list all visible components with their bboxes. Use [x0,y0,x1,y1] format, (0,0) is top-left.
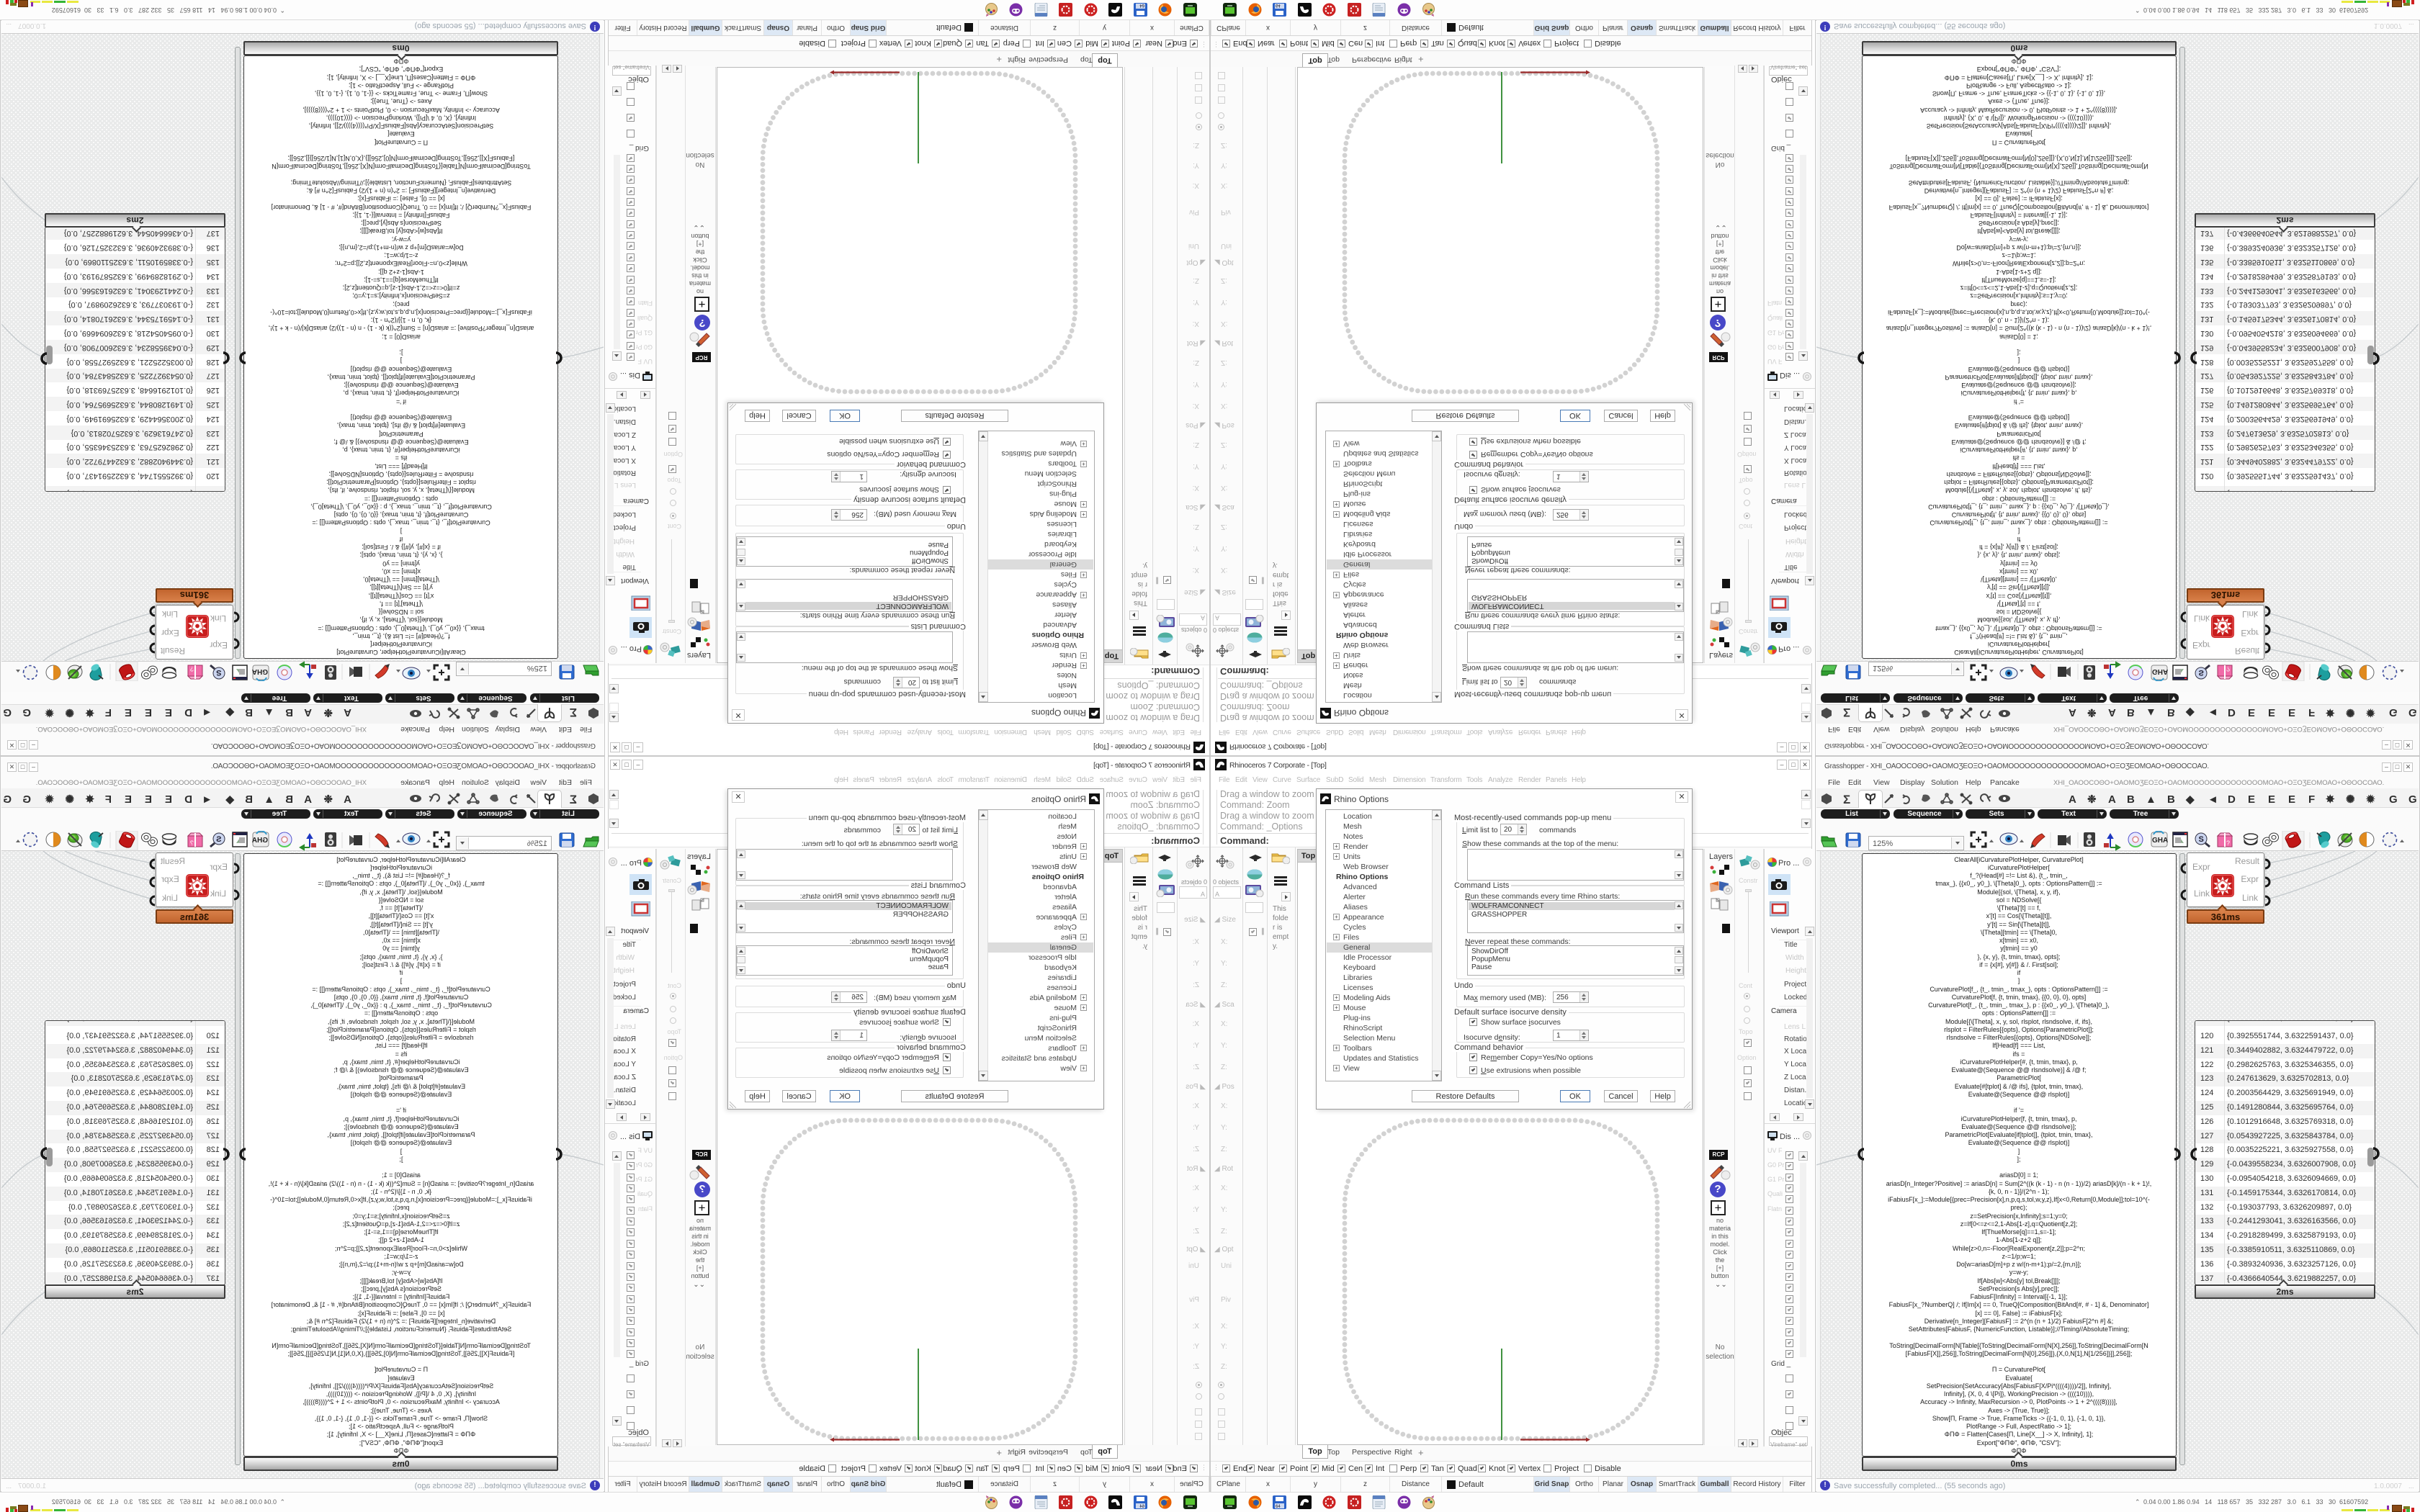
svg-text:A: A [2069,793,2076,806]
svg-text:◄: ◄ [202,706,212,719]
svg-text:◆: ◆ [225,793,235,806]
svg-text:E: E [145,706,152,719]
svg-text:▲: ▲ [264,706,274,719]
svg-text:✺: ✺ [2346,793,2355,806]
svg-text:G: G [22,793,31,806]
svg-text:B: B [2167,706,2175,719]
svg-text:E: E [2288,793,2295,806]
svg-text:B: B [285,793,293,806]
svg-text:?: ? [190,840,194,847]
svg-text:E: E [2248,706,2255,719]
svg-text:◆: ◆ [225,706,235,719]
svg-text:✹: ✹ [2365,706,2375,719]
svg-text:✺: ✺ [65,706,74,719]
svg-text:G: G [3,793,12,806]
svg-text:S: S [216,668,221,677]
svg-text:D: D [2228,793,2236,806]
svg-text:E: E [125,706,132,719]
svg-text:❉: ❉ [2087,706,2097,719]
svg-text:GHA: GHA [252,837,268,845]
svg-text:A: A [2108,793,2116,806]
svg-text:✺: ✺ [65,793,74,806]
svg-text:✸: ✸ [85,706,95,719]
svg-text:S: S [2199,835,2204,844]
svg-text:G: G [22,706,31,719]
svg-text:B: B [245,706,253,719]
svg-text:✹: ✹ [45,793,55,806]
svg-text:G: G [2389,706,2398,719]
svg-text:F: F [2308,706,2315,719]
svg-text:S: S [216,835,221,844]
svg-text:F: F [105,706,112,719]
svg-text:64: 64 [1276,1505,1281,1509]
svg-text:GHA: GHA [2152,667,2168,675]
svg-text:E: E [2248,793,2255,806]
svg-text:✸: ✸ [2325,793,2335,806]
svg-text:E: E [2268,706,2275,719]
svg-text:❉: ❉ [323,706,333,719]
svg-text:F: F [2308,793,2315,806]
svg-text:E: E [125,793,132,806]
svg-text:A: A [304,793,312,806]
svg-text:GHA: GHA [2152,837,2168,845]
svg-text:S: S [2199,668,2204,677]
svg-text:◄: ◄ [2208,706,2218,719]
svg-text:G: G [2408,706,2417,719]
svg-text:E: E [2268,793,2275,806]
svg-text:✸: ✸ [2325,706,2335,719]
svg-text:64: 64 [1276,3,1281,7]
svg-text:A: A [344,793,351,806]
svg-text:D: D [2228,706,2236,719]
svg-text:?: ? [2226,840,2230,847]
svg-text:E: E [2288,706,2295,719]
svg-text:64: 64 [1139,1505,1144,1509]
svg-text:B: B [285,706,293,719]
svg-text:?: ? [2226,665,2230,672]
svg-text:64: 64 [1139,3,1144,7]
svg-text:G: G [3,706,12,719]
svg-text:?: ? [190,665,194,672]
svg-text:E: E [165,706,172,719]
svg-text:◆: ◆ [2185,706,2195,719]
svg-text:A: A [304,706,312,719]
svg-text:A: A [2108,706,2116,719]
svg-text:A: A [2069,706,2076,719]
svg-text:D: D [184,706,192,719]
svg-text:✺: ✺ [2346,706,2355,719]
svg-text:✸: ✸ [85,793,95,806]
svg-text:◆: ◆ [2185,793,2195,806]
svg-text:❉: ❉ [2087,793,2097,806]
svg-text:▲: ▲ [2146,706,2156,719]
svg-text:◄: ◄ [202,793,212,806]
svg-text:✹: ✹ [45,706,55,719]
svg-text:E: E [165,793,172,806]
svg-text:▲: ▲ [2146,793,2156,806]
svg-text:G: G [2408,793,2417,806]
svg-text:B: B [2167,793,2175,806]
svg-text:G: G [2389,793,2398,806]
svg-text:GHA: GHA [252,667,268,675]
svg-text:F: F [105,793,112,806]
svg-text:▲: ▲ [264,793,274,806]
svg-text:◄: ◄ [2208,793,2218,806]
svg-text:B: B [2127,706,2135,719]
svg-text:A: A [344,706,351,719]
svg-text:B: B [245,793,253,806]
svg-text:✹: ✹ [2365,793,2375,806]
svg-text:❉: ❉ [323,793,333,806]
svg-text:E: E [145,793,152,806]
svg-text:B: B [2127,793,2135,806]
svg-text:D: D [184,793,192,806]
